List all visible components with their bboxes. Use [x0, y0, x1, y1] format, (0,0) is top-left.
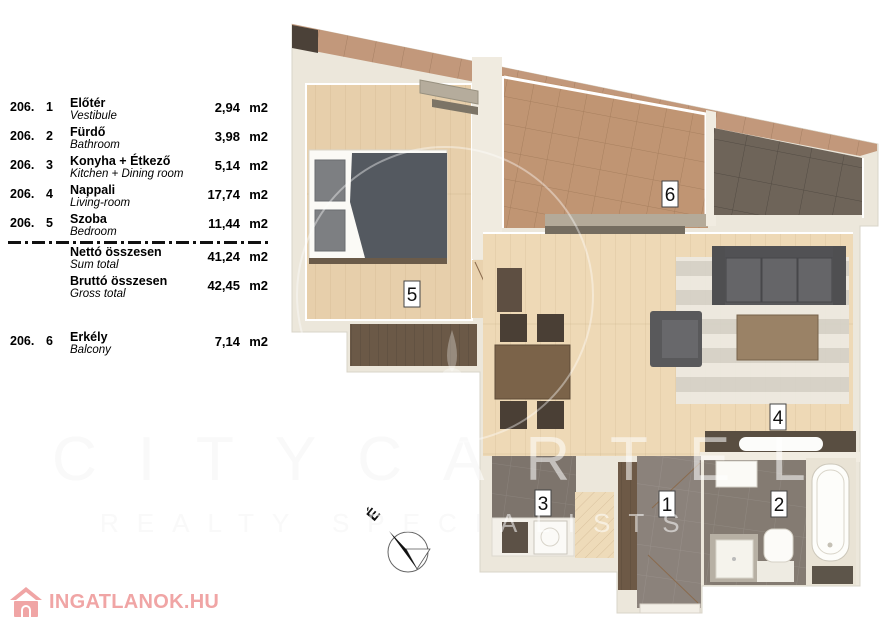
room-label-5: 5 — [404, 281, 420, 307]
svg-text:1: 1 — [662, 495, 673, 516]
vestibule — [618, 456, 701, 613]
sink — [716, 461, 757, 487]
bedroom — [306, 57, 502, 366]
kitchen-appliance — [502, 522, 528, 553]
entrance-door — [640, 604, 700, 613]
svg-text:2: 2 — [774, 495, 785, 516]
dining-chair — [500, 401, 527, 429]
sofa — [712, 246, 846, 305]
room-label-3: 3 — [535, 490, 551, 516]
north-label: É — [363, 504, 385, 525]
ingatlanok-logo: INGATLANOK.HU — [8, 584, 219, 620]
bedroom-right-wall — [472, 57, 502, 259]
svg-text:3: 3 — [538, 494, 549, 515]
coffee-table — [737, 315, 818, 360]
dining-chair — [537, 314, 564, 342]
double-bed — [309, 150, 447, 264]
svg-text:6: 6 — [665, 185, 676, 206]
room-label-4: 4 — [770, 404, 786, 430]
dining-chair — [537, 401, 564, 429]
armchair — [650, 311, 702, 367]
room-label-1: 1 — [659, 491, 675, 517]
balcony — [502, 74, 708, 234]
bath-mat — [812, 566, 853, 584]
house-icon — [8, 584, 44, 620]
washing-machine — [534, 521, 567, 554]
kitchen-cabinet — [497, 268, 522, 312]
svg-text:5: 5 — [407, 285, 418, 306]
shower — [710, 534, 758, 582]
logo-text: INGATLANOK.HU — [49, 591, 219, 614]
svg-text:4: 4 — [773, 408, 784, 429]
dining-chair — [500, 314, 527, 342]
floor-plan-image: 5 6 4 3 1 2 — [0, 0, 882, 625]
north-compass: É — [363, 504, 430, 572]
room-label-6: 6 — [662, 181, 678, 207]
bathtub — [812, 464, 849, 561]
duvet — [350, 153, 447, 258]
room-label-2: 2 — [771, 491, 787, 517]
floorplan-page: CITYCARTEL REALTY SPECIALISTS 206. 1 Elő… — [0, 0, 882, 625]
pillow — [315, 160, 345, 201]
bathroom — [704, 458, 856, 585]
